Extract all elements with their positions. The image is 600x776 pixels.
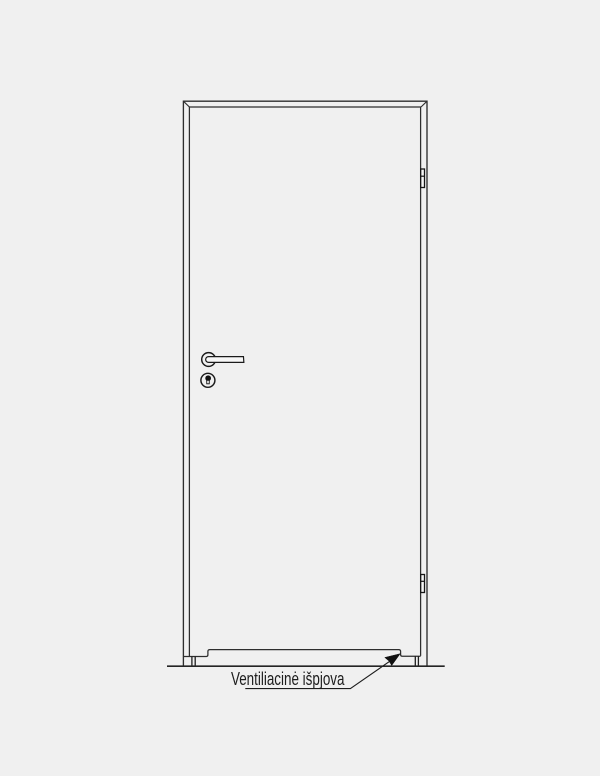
svg-text:Ventiliacinė išpjova: Ventiliacinė išpjova bbox=[231, 669, 345, 689]
